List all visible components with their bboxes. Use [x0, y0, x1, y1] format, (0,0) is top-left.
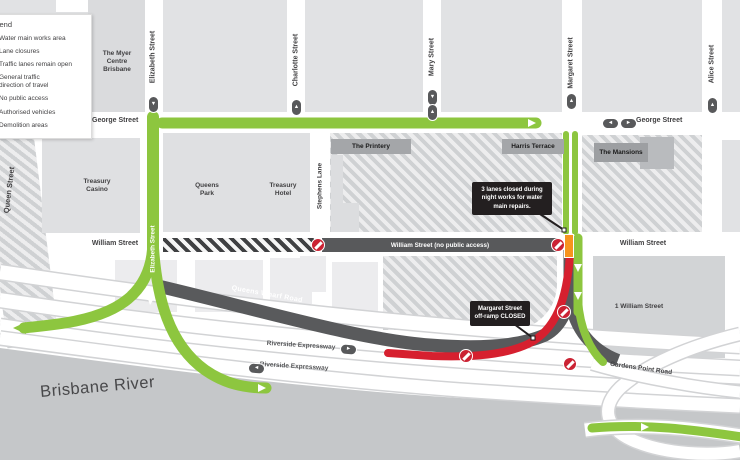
- offramp-closed-callout: Margaret Street off-ramp CLOSED: [470, 301, 530, 326]
- legend-item-general-traffic: General traffic direction of travel: [0, 74, 61, 90]
- william-street-closed-hatch: [163, 238, 316, 252]
- harris-terrace-label-text: Harris Terrace: [511, 143, 555, 150]
- mansions-label-text: The Mansions: [599, 149, 642, 156]
- elizabeth-street-on-green-label: Elizabeth Street: [150, 225, 157, 272]
- offramp-closed-callout-text: Margaret Street off-ramp CLOSED: [475, 306, 526, 320]
- legend-title: Legend: [0, 20, 85, 29]
- legend-item-no-access: No public access: [0, 95, 85, 103]
- arrow-up-icon: ▲: [710, 103, 715, 109]
- stephens-lane-label: Stephens Lane: [317, 163, 324, 209]
- direction-pill-charlotte: ▲: [291, 99, 302, 116]
- legend: Legend Water main works area Lane closur…: [0, 14, 92, 139]
- arrow-right-icon: ►: [626, 121, 631, 127]
- charlotte-street-label: Charlotte Street: [293, 34, 300, 87]
- lane-closure-callout-text: 3 lanes closed during night works for wa…: [481, 187, 542, 210]
- arrow-down-icon: ▼: [430, 95, 435, 101]
- queens-wharf-road: [158, 250, 618, 360]
- no-entry-bar: [554, 241, 562, 249]
- legend-item-water-main: Water main works area: [0, 35, 85, 43]
- mansions-label: The Mansions: [594, 143, 648, 162]
- william-street-label-west: William Street: [88, 240, 142, 248]
- lane-closure-orange-marker: [564, 234, 574, 258]
- direction-pill-margaret: ▲: [566, 93, 577, 110]
- direction-pill-riverside-west: ◄: [248, 362, 266, 374]
- margaret-street-label: Margaret Street: [568, 37, 575, 88]
- arrow-up-icon: ▲: [294, 105, 299, 111]
- no-entry-bar: [560, 308, 568, 316]
- no-entry-icon: [551, 238, 565, 252]
- no-entry-icon: [557, 305, 571, 319]
- no-entry-bar: [462, 352, 470, 360]
- william-street-label-east: William Street: [612, 240, 674, 248]
- legend-item-lanes-open: Traffic lanes remain open: [0, 61, 85, 69]
- arrow-up-icon: ▲: [430, 110, 435, 116]
- no-entry-bar: [314, 241, 322, 249]
- legend-item-authorised: Authorised vehicles: [0, 109, 85, 117]
- arrow-down-icon: ▼: [151, 102, 156, 108]
- mary-street-label: Mary Street: [429, 38, 436, 76]
- lane-closure-callout: 3 lanes closed during night works for wa…: [472, 182, 552, 215]
- direction-pill-george-right: ►: [620, 118, 637, 129]
- one-william-street-label: 1 William Street: [599, 303, 679, 311]
- no-entry-icon: [459, 349, 473, 363]
- arrow-left-icon: ◄: [254, 366, 260, 372]
- george-street-label-west: George Street: [92, 117, 152, 125]
- direction-pill-riverside-east: ►: [340, 343, 358, 355]
- george-street-label-east: George Street: [636, 117, 696, 125]
- direction-pill-alice: ▲: [707, 97, 718, 114]
- myer-centre-label: The Myer Centre Brisbane: [99, 50, 135, 73]
- elizabeth-street-label: Elizabeth Street: [150, 31, 157, 84]
- treasury-casino-label: Treasury Casino: [74, 178, 120, 194]
- direction-pill-elizabeth: ▼: [148, 96, 159, 113]
- william-street-no-access-label: William Street (no public access): [391, 242, 489, 249]
- direction-pill-mary-up: ▲: [427, 104, 438, 121]
- printery-label-text: The Printery: [352, 143, 390, 150]
- queens-park-label: Queens Park: [191, 182, 223, 198]
- printery-label: The Printery: [331, 139, 411, 154]
- arrow-up-icon: ▲: [569, 99, 574, 105]
- arrow-right-icon: ►: [346, 347, 352, 353]
- harris-terrace-label: Harris Terrace: [502, 139, 564, 154]
- no-entry-icon: [311, 238, 325, 252]
- william-street-no-access-road: William Street (no public access): [322, 238, 558, 252]
- direction-pill-george-left: ◄: [602, 118, 619, 129]
- no-entry-bar: [566, 360, 574, 368]
- legend-item-demolition: Demolition areas: [0, 122, 85, 130]
- alice-street-label: Alice Street: [709, 45, 716, 84]
- arrow-left-icon: ◄: [608, 121, 613, 127]
- road-closure-map: William Street (no public access) George…: [0, 0, 740, 460]
- no-entry-icon: [563, 357, 577, 371]
- treasury-hotel-label: Treasury Hotel: [266, 182, 300, 198]
- legend-item-lane-closures: Lane closures: [0, 48, 85, 56]
